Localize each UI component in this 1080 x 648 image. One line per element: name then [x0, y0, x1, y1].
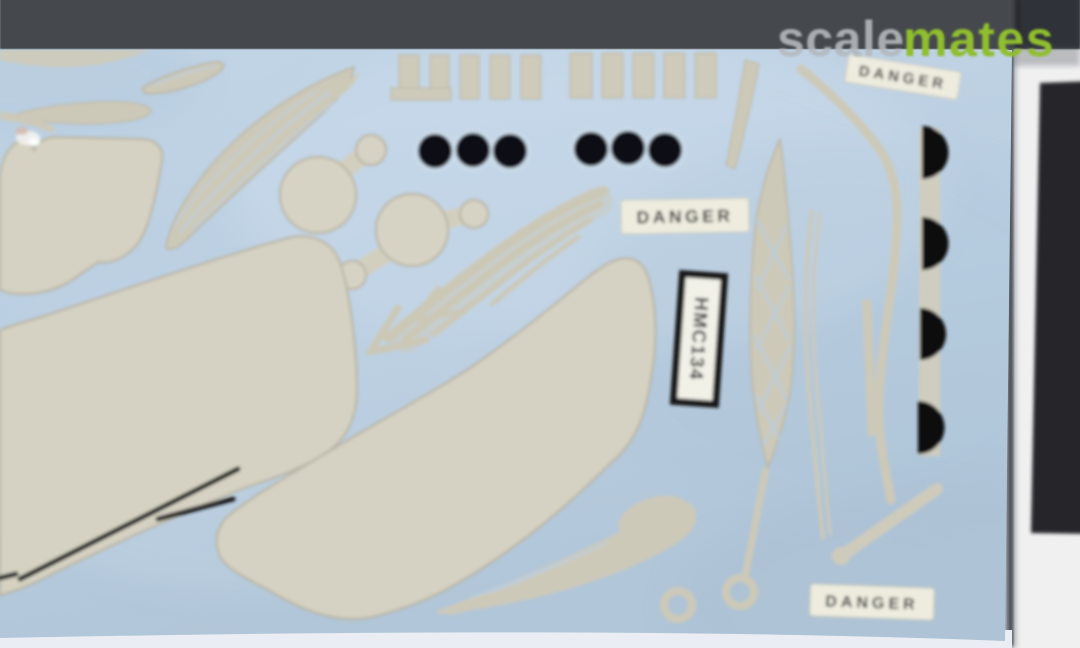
- svg-text:DANGER: DANGER: [636, 206, 733, 228]
- svg-text:scale: scale: [777, 11, 905, 67]
- svg-text:mates: mates: [903, 11, 1055, 67]
- svg-text:DANGER: DANGER: [825, 593, 919, 613]
